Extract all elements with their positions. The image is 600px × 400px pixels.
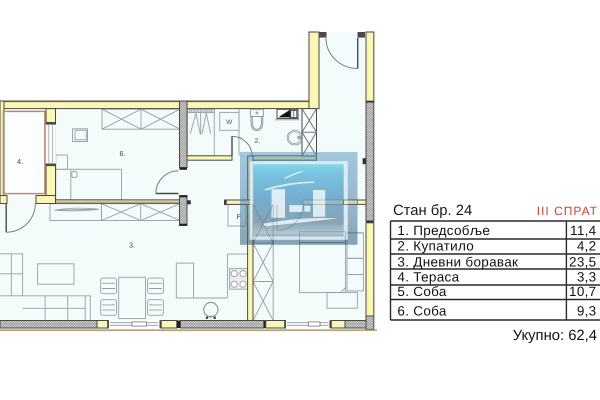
svg-text:III СПРАТ: III СПРАТ	[537, 204, 598, 218]
svg-text:4,2: 4,2	[577, 239, 597, 254]
svg-text:2.: 2.	[255, 138, 261, 145]
svg-text:2. Купатило: 2. Купатило	[397, 239, 474, 254]
svg-text:6.: 6.	[120, 149, 126, 158]
svg-text:1. Предсобље: 1. Предсобље	[397, 223, 490, 238]
svg-text:4.: 4.	[17, 157, 23, 166]
svg-text:23,5: 23,5	[569, 255, 596, 270]
svg-text:3.: 3.	[129, 241, 135, 250]
svg-text:Укупно: 62,4: Укупно: 62,4	[513, 328, 597, 344]
svg-text:11,4: 11,4	[570, 223, 597, 238]
svg-text:3,3: 3,3	[577, 270, 597, 285]
svg-text:Стан бр. 24: Стан бр. 24	[393, 203, 472, 219]
svg-text:10,7: 10,7	[569, 284, 596, 299]
svg-text:3. Дневни боравак: 3. Дневни боравак	[397, 255, 518, 270]
svg-text:4. Тераса: 4. Тераса	[397, 270, 459, 285]
svg-text:9,3: 9,3	[577, 303, 597, 318]
svg-text:5. Соба: 5. Соба	[397, 284, 446, 299]
svg-text:W: W	[226, 119, 233, 126]
svg-text:6. Соба: 6. Соба	[397, 303, 446, 318]
